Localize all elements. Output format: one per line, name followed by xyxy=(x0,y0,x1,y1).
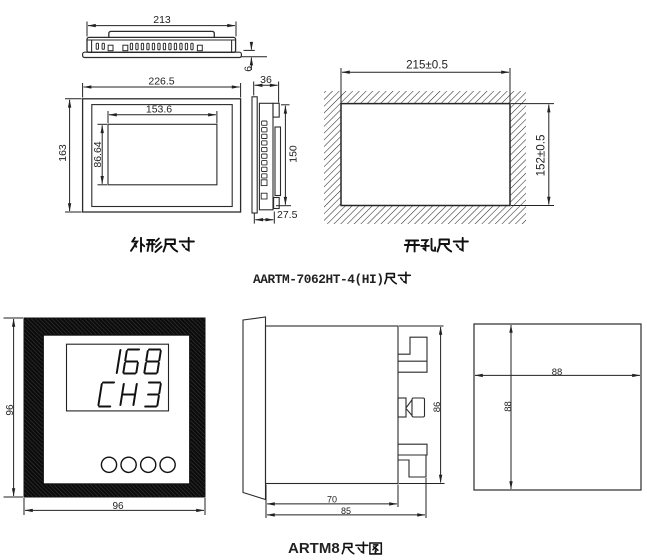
svg-text:86: 86 xyxy=(432,402,443,413)
svg-text:215±0.5: 215±0.5 xyxy=(406,59,448,72)
svg-text:150: 150 xyxy=(288,145,300,163)
svg-text:152±0.5: 152±0.5 xyxy=(535,135,548,177)
svg-text:96: 96 xyxy=(5,404,16,416)
svg-text:88: 88 xyxy=(552,367,563,378)
svg-text:70: 70 xyxy=(327,495,337,505)
svg-text:ARTM8: ARTM8 xyxy=(288,540,340,557)
svg-text:27.5: 27.5 xyxy=(277,209,298,221)
svg-text:213: 213 xyxy=(153,14,171,26)
svg-text:86.64: 86.64 xyxy=(92,141,104,167)
svg-text:85: 85 xyxy=(341,506,351,516)
svg-text:88: 88 xyxy=(503,401,514,412)
svg-text:36: 36 xyxy=(260,74,272,86)
svg-text:96: 96 xyxy=(112,501,124,512)
svg-text:AARTM-7062HT-4(HI): AARTM-7062HT-4(HI) xyxy=(253,272,384,287)
svg-text:226.5: 226.5 xyxy=(148,76,174,88)
svg-text:163: 163 xyxy=(57,144,69,162)
svg-text:6: 6 xyxy=(242,66,254,72)
svg-text:153.6: 153.6 xyxy=(146,103,172,115)
